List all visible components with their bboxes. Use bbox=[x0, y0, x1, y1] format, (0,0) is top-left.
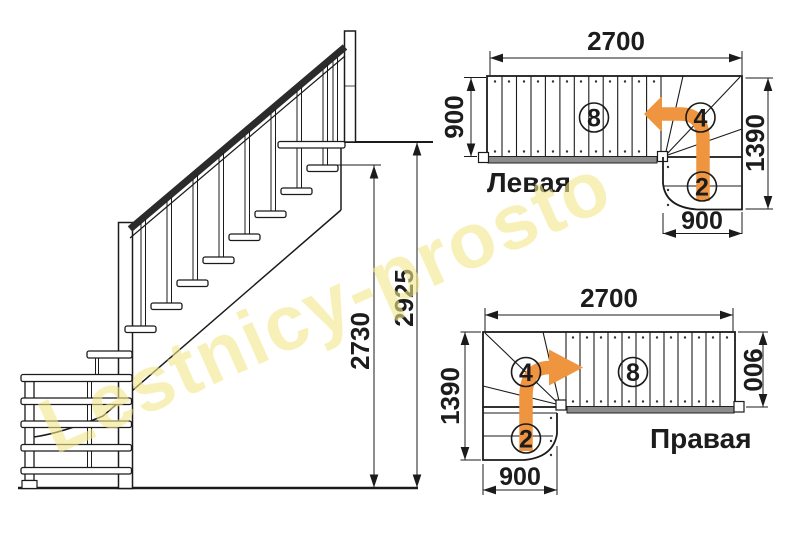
top-newel-post bbox=[345, 31, 356, 142]
strip-end-post bbox=[734, 402, 744, 413]
flight-steps-count: 8 bbox=[626, 359, 640, 387]
dim-label-1390-right: 1390 bbox=[435, 367, 465, 425]
tread bbox=[281, 188, 312, 195]
winder-steps-count: 4 bbox=[694, 105, 708, 133]
flight-steps-count: 8 bbox=[587, 105, 601, 133]
tread bbox=[125, 326, 156, 333]
dim-label-1390-left: 1390 bbox=[740, 114, 770, 172]
dim-label-900-bottom-right: 900 bbox=[499, 463, 541, 491]
bottom-steps-count: 2 bbox=[519, 426, 533, 454]
dim-label-900-bottom-left: 900 bbox=[681, 207, 723, 235]
tread bbox=[177, 280, 208, 287]
landing-tread bbox=[278, 142, 345, 149]
winder-tread bbox=[21, 468, 132, 475]
dim-label-2700-left: 2700 bbox=[587, 26, 645, 56]
stair-drawing-page: 2730 2925 bbox=[0, 0, 800, 549]
newel-post-plan bbox=[556, 400, 566, 410]
strip-end-post bbox=[479, 153, 489, 163]
dim-label-900-right: 900 bbox=[738, 348, 768, 391]
tread bbox=[151, 303, 182, 310]
stair-diagram: 2730 2925 bbox=[0, 0, 800, 549]
tread bbox=[203, 257, 234, 264]
tread bbox=[307, 165, 338, 172]
plan-right-title: Правая bbox=[650, 423, 752, 454]
winder-steps-count: 4 bbox=[519, 359, 533, 387]
tread bbox=[229, 234, 260, 241]
left-post-foot bbox=[22, 481, 37, 489]
dim-label-900-left: 900 bbox=[439, 95, 469, 138]
stringer-strip bbox=[567, 407, 734, 414]
tread bbox=[255, 211, 286, 218]
bottom-steps-count: 2 bbox=[695, 174, 709, 202]
dim-label-2700-right: 2700 bbox=[580, 283, 638, 313]
